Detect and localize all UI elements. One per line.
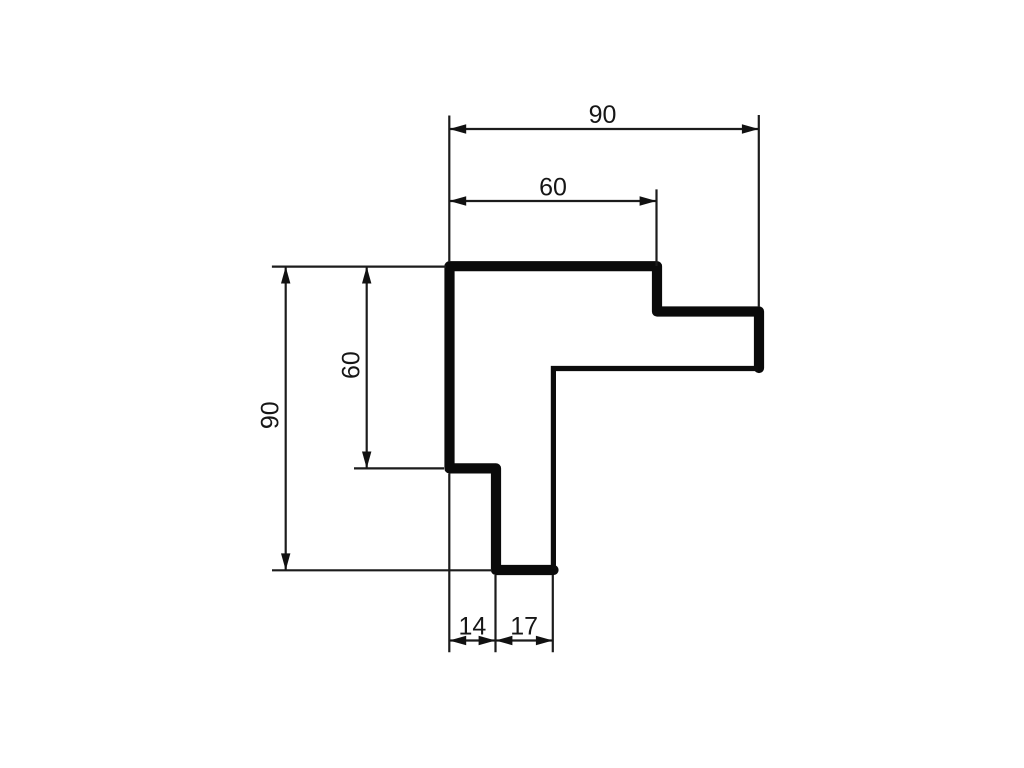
svg-text:17: 17 (510, 613, 538, 641)
svg-text:90: 90 (589, 101, 617, 129)
svg-text:14: 14 (458, 613, 486, 641)
svg-text:90: 90 (257, 401, 285, 429)
svg-text:60: 60 (539, 174, 567, 202)
svg-text:60: 60 (337, 351, 365, 379)
